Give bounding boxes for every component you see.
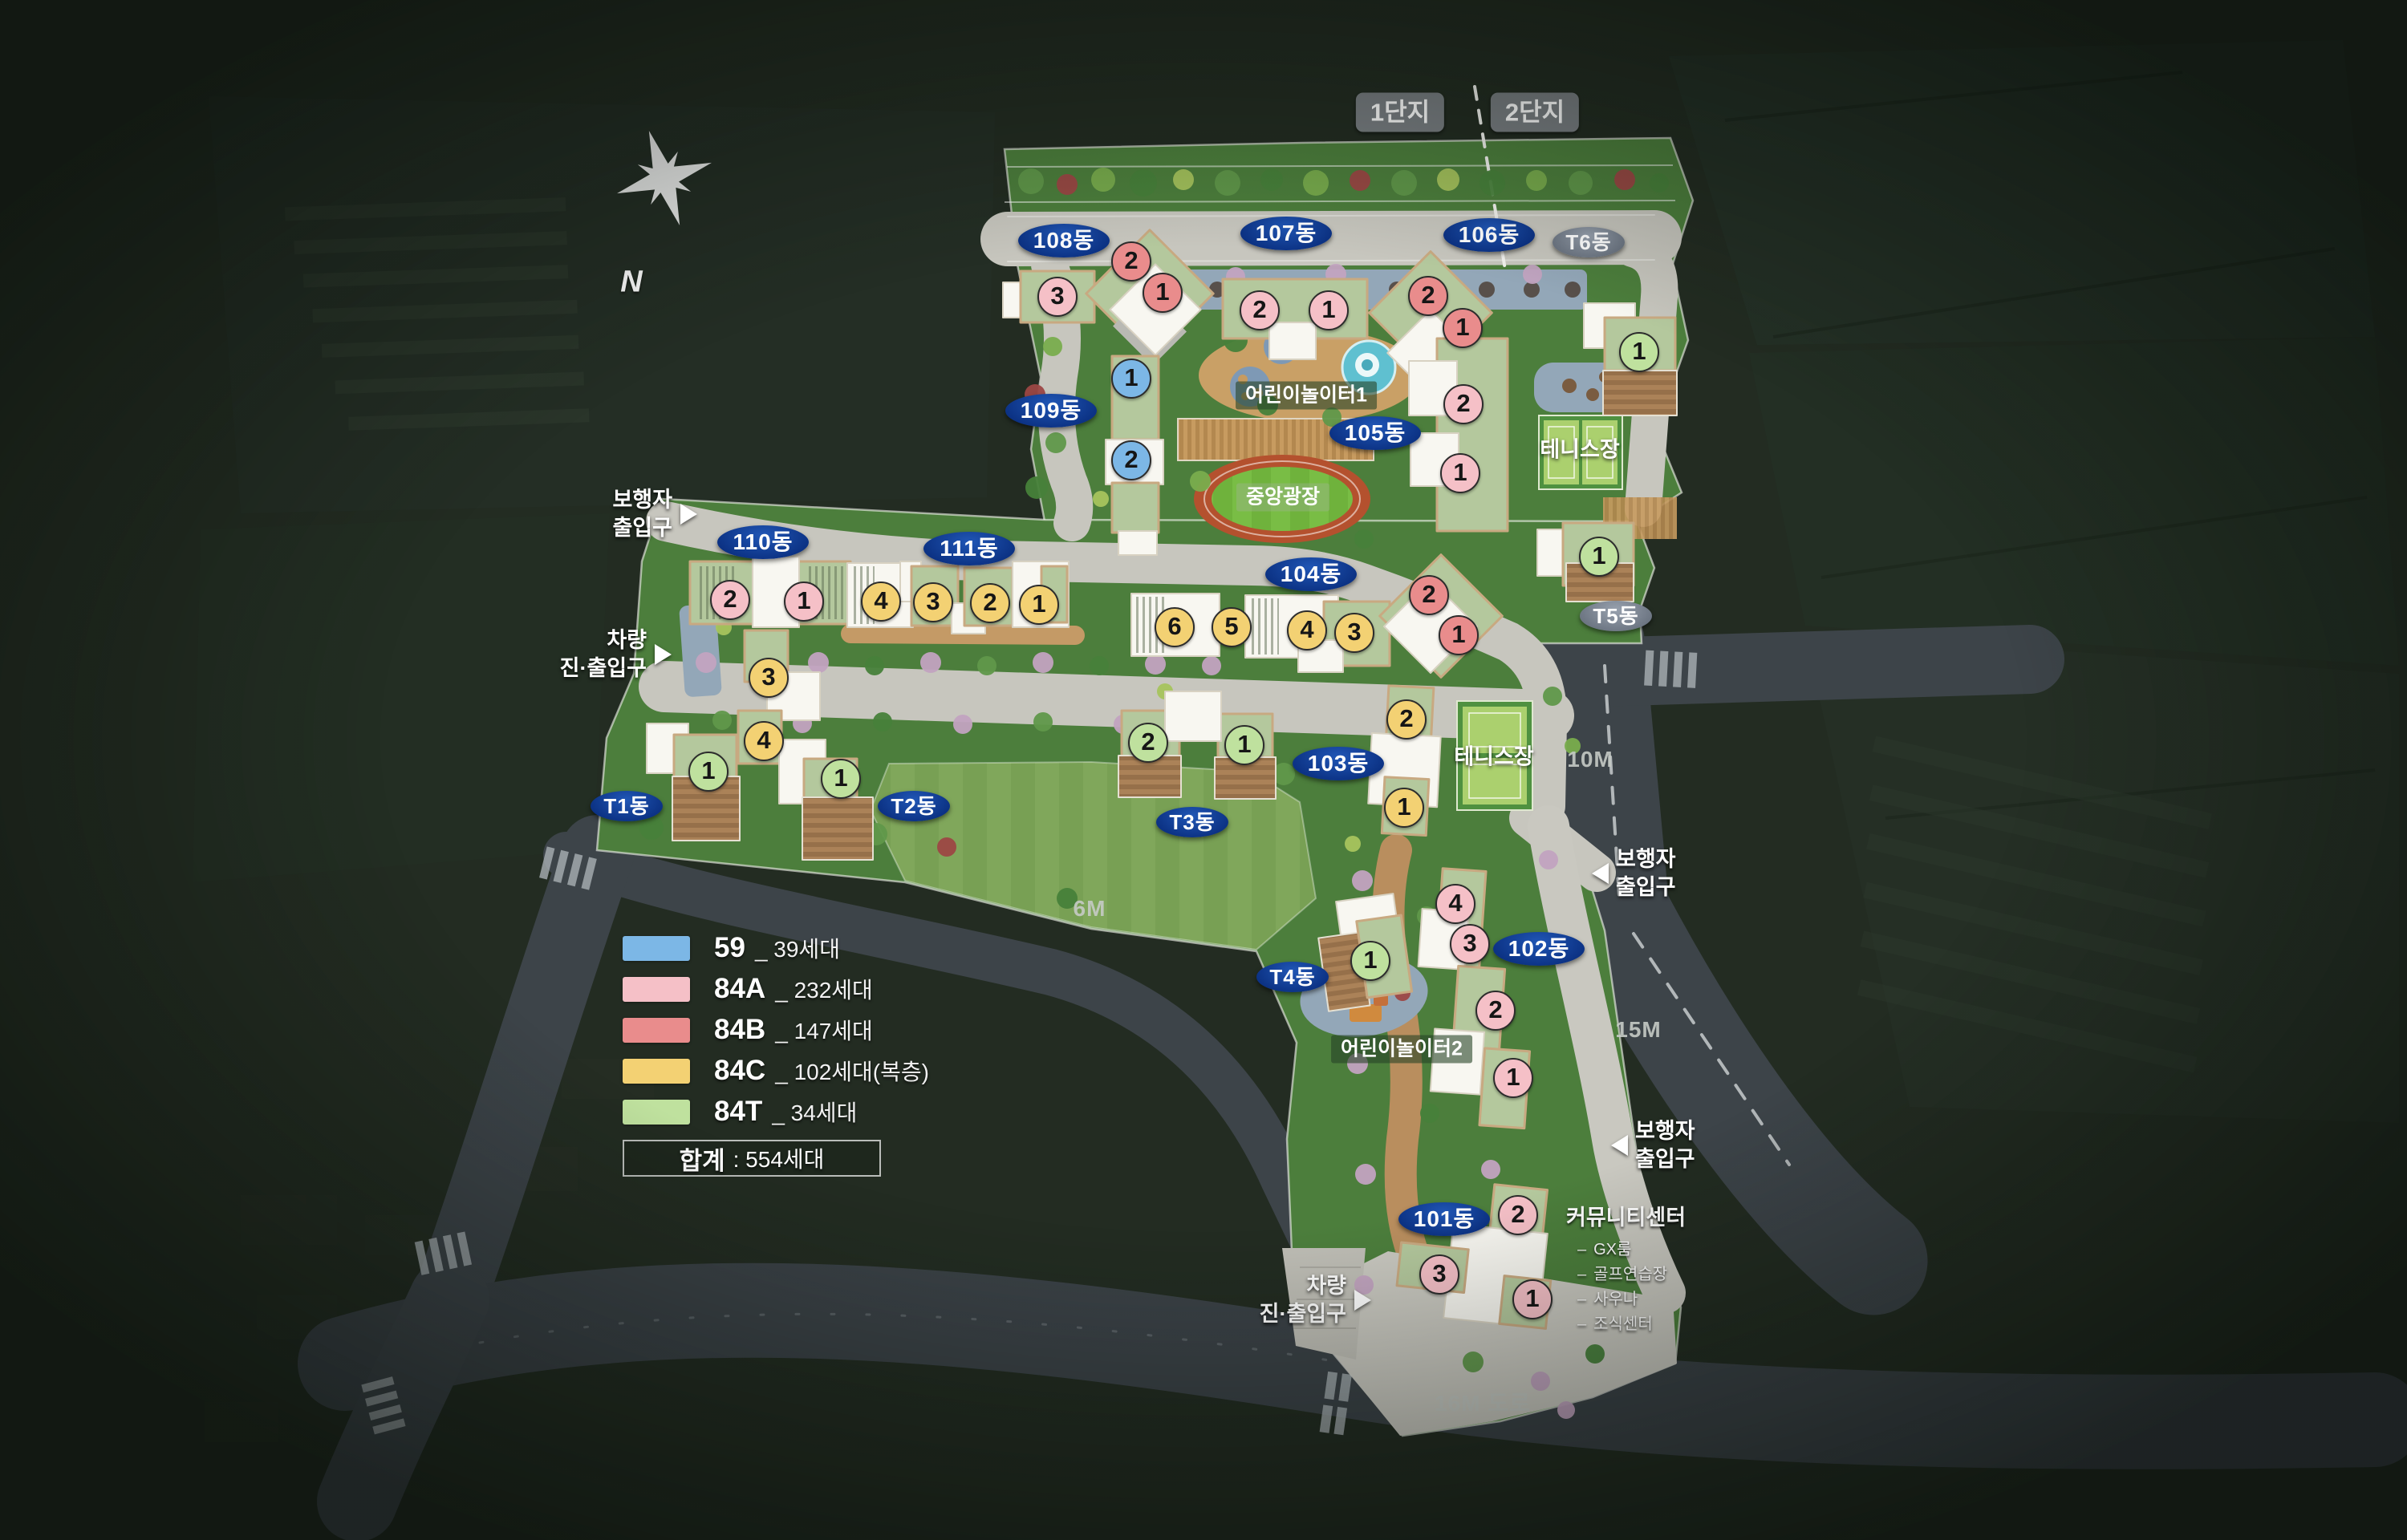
site-plan-map (0, 0, 2407, 1540)
building-111-footprint (847, 561, 1069, 634)
site-plan-canvas: 1단지 2단지 N 101동 102동 103동 104동 105동 106동 … (0, 0, 2407, 1540)
building-109-footprint (1106, 356, 1163, 555)
